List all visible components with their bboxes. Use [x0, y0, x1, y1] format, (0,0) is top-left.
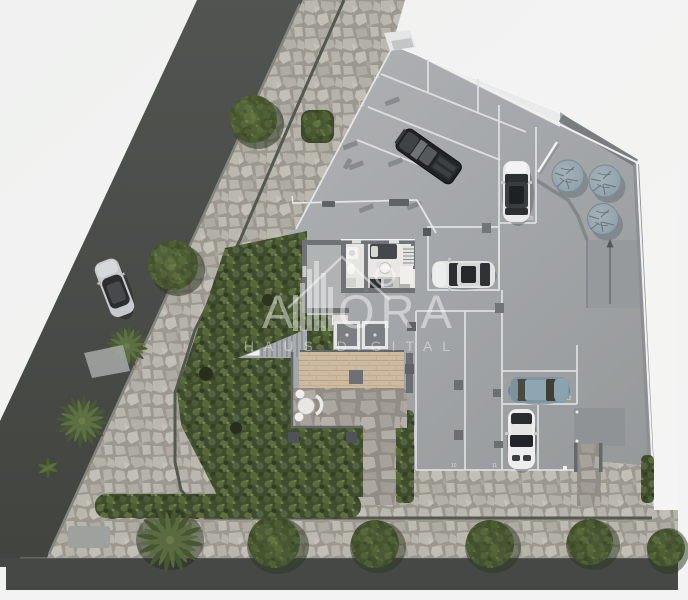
svg-text:11: 11 — [492, 463, 497, 469]
svg-text:05: 05 — [374, 74, 380, 80]
svg-text:10: 10 — [451, 463, 457, 469]
svg-text:A: A — [262, 285, 296, 338]
svg-text:HAUS DIGITAL: HAUS DIGITAL — [244, 338, 460, 354]
svg-text:ORA: ORA — [338, 285, 458, 338]
svg-text:03: 03 — [359, 102, 365, 108]
